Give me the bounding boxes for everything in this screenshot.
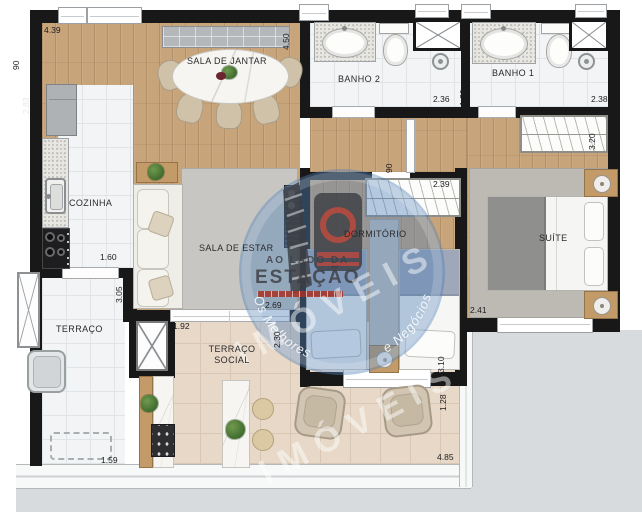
bed-pillow: [310, 329, 361, 360]
tv-speaker-dot: [288, 190, 295, 197]
armchair-seat: [389, 392, 425, 428]
sliding-door-track: [173, 316, 289, 317]
dimension-label: 1.28: [438, 394, 448, 411]
room-label-kitchen: COZINHA: [69, 198, 112, 208]
bath1-shower-box: [569, 19, 609, 51]
room-label-bath1: BANHO 1: [492, 68, 534, 78]
dimension-label: 1.30: [458, 89, 468, 106]
dining-sideboard: [162, 26, 290, 48]
suite-lamp: [593, 297, 611, 315]
dimension-label: 3.20: [587, 133, 597, 150]
dimension-label: 2.30: [272, 331, 282, 348]
armchair-seat: [302, 394, 338, 430]
living-rug: [181, 168, 298, 310]
bath1-shower-drain: [584, 59, 589, 64]
dimension-label: 90: [384, 164, 394, 173]
dimension-label: 1.92: [173, 321, 190, 331]
dimension-label: 2.39: [433, 179, 450, 189]
room-label-bedroom: DORMITÓRIO: [344, 229, 407, 239]
suite-nightstand-bottom: [584, 291, 618, 319]
shaft-x-window: [136, 321, 168, 371]
tv-speaker-dot: [288, 202, 295, 209]
bath1-shower-head: [578, 53, 595, 70]
laundry-tub-basin: [33, 356, 61, 388]
bath2-shower-box: [413, 19, 463, 51]
barbecue-grill: [151, 424, 175, 457]
sofa-throw-pillow: [147, 274, 174, 301]
kitchen-sink: [45, 178, 66, 214]
bedroom-lamp: [376, 351, 393, 368]
bed-blanket: [400, 250, 459, 296]
outdoor-armchair: [380, 383, 434, 438]
dimension-label: 4.85: [437, 452, 454, 462]
laundry-tub: [27, 350, 66, 393]
bath2-faucet: [342, 26, 347, 31]
bath1-washbasin: [480, 28, 528, 60]
dimension-label: 1.59: [101, 455, 118, 465]
room-label-dining: SALA DE JANTAR: [187, 56, 267, 66]
dining-centerpiece-flowers: [216, 72, 226, 80]
bath1-vent-a: [461, 4, 491, 19]
suite-lamp: [593, 175, 611, 193]
wall-bedroom-top-a: [310, 172, 372, 180]
fridge-divider: [49, 99, 76, 100]
room-label-suite: SUÍTE: [539, 233, 568, 243]
fridge: [46, 84, 77, 136]
tv-panel: [284, 185, 300, 248]
wall-living-bottom-b: [290, 310, 302, 322]
room-label-social-terrace: TERRAÇO SOCIAL: [198, 344, 266, 366]
stove-burner: [57, 248, 65, 256]
suite-bed-fold-line: [556, 197, 557, 290]
stove-burner: [45, 247, 55, 257]
room-label-bath2: BANHO 2: [338, 74, 380, 84]
stove: [42, 228, 70, 269]
dimension-label: 4.39: [44, 25, 61, 35]
dimension-label: 2.83: [21, 97, 31, 114]
sofa: [133, 184, 183, 309]
exterior-ground-right: [471, 330, 642, 512]
single-bed-right: [399, 249, 460, 370]
kitchen-sink-basin: [50, 184, 63, 210]
dimension-label: 2.69: [265, 300, 282, 310]
stove-knobs: [67, 233, 69, 235]
suite-bed: [487, 196, 608, 291]
room-label-living: SALA DE ESTAR: [199, 243, 274, 253]
bath2-door: [332, 106, 375, 118]
stove-burner: [45, 232, 55, 242]
kitchen-window-b: [87, 7, 142, 24]
bath1-faucet: [501, 26, 506, 31]
bedroom-nightstand: [369, 345, 399, 373]
floorplan-canvas: Os Melhores e Negócios AO LADO DA ESTAÇÃ…: [0, 0, 642, 512]
outdoor-armchair: [293, 385, 347, 441]
bath1-door: [478, 106, 516, 118]
bedroom-door-leaf: [406, 119, 415, 173]
bath2-shower-head: [432, 53, 449, 70]
dimension-label: 3.10: [436, 356, 446, 373]
dimension-label: 1.30: [300, 89, 310, 106]
bath2-shower-drain: [438, 59, 443, 64]
suite-pillow: [584, 247, 604, 286]
bath2-vent-a: [299, 4, 329, 21]
terrace-duct-window: [17, 272, 40, 348]
bath2-vent-b: [415, 4, 449, 18]
suite-nightstand-top: [584, 169, 618, 197]
bath2-toilet-bowl: [383, 34, 408, 66]
bath1-vent-b: [575, 4, 607, 18]
dimension-label: 90: [11, 61, 21, 70]
suite-bed-blanket: [488, 197, 546, 290]
suite-pillow: [584, 202, 604, 241]
dimension-label: 1.60: [100, 252, 117, 262]
single-bed-left: [306, 249, 367, 370]
bath2-washbasin: [322, 28, 368, 58]
kitchen-faucet: [46, 194, 51, 199]
exterior-ground-bottom: [16, 487, 642, 512]
dimension-label: 3.05: [114, 286, 124, 303]
bath2-toilet-tank: [379, 23, 409, 34]
room-label-terrace: TERRAÇO: [56, 324, 103, 334]
sliding-door-divider: [229, 311, 230, 322]
kitchen-window-a: [58, 7, 87, 24]
dimension-label: 4.50: [281, 33, 291, 50]
terrace-door-opening: [62, 267, 119, 279]
grill-counter-plant: [141, 395, 158, 412]
stove-burner: [57, 234, 65, 242]
bar-stool: [252, 398, 274, 420]
dimension-label: 2.38: [591, 94, 608, 104]
bed-blanket: [307, 250, 366, 296]
dimension-label: 2.41: [470, 305, 487, 315]
dimension-label: 2.36: [433, 94, 450, 104]
bed-pillow: [404, 329, 455, 360]
bar-stool: [252, 429, 274, 451]
wall-left: [30, 10, 42, 466]
